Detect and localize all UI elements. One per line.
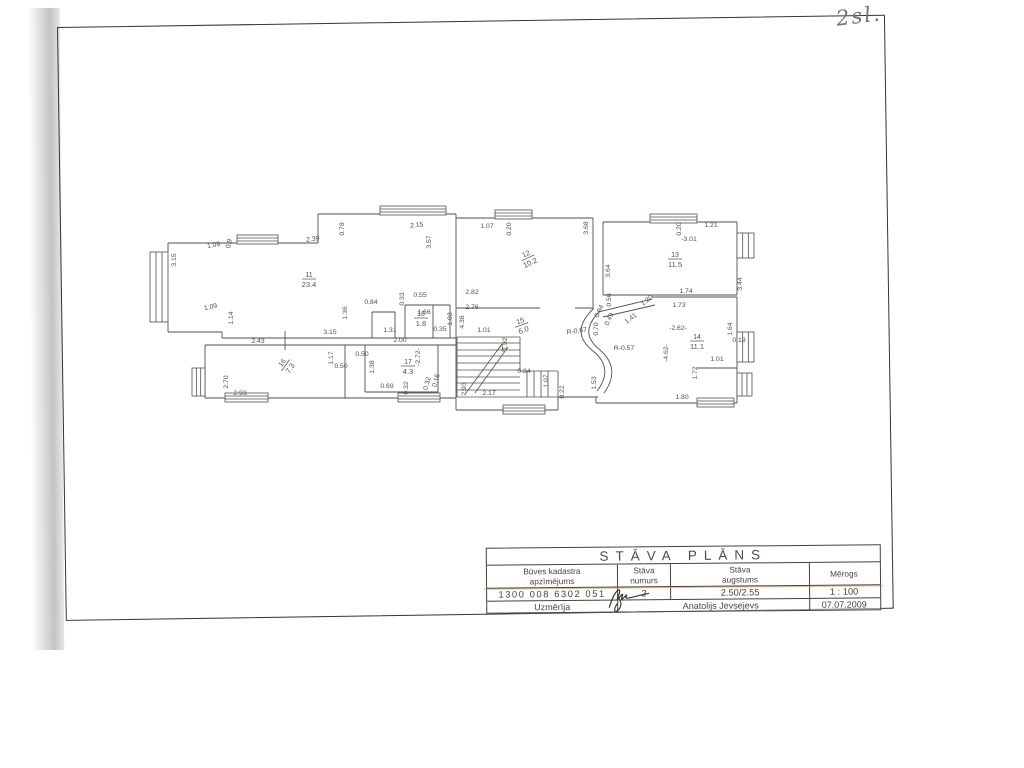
room-number: 14 [693,334,701,341]
dimension-label: -3.01 [681,236,697,243]
dimension-label: 0.84 [364,299,377,306]
dimension-label: R-0.57 [614,345,635,352]
dimension-label: 1.72 [692,366,699,379]
dimension-label: 1.14 [228,311,235,324]
plan-room-labels: 1123.41210.21311.51411.1156.0167.3174.31… [276,248,704,376]
dimension-label: 1.07 [543,374,550,387]
kadastra-value: 1300 008 6302 051 [487,588,618,601]
room-number: 17 [404,359,412,366]
dimension-label: 1.92 [502,337,509,350]
merogs-value: 1 : 100 [810,585,878,598]
room-number: 11 [305,272,312,279]
window [737,233,754,258]
dimension-label: 1.01 [710,356,723,363]
dimension-label: 1.74 [679,288,692,295]
dimension-label: 0.50 [355,351,368,358]
dimension-label: 1.09 [207,241,221,250]
dimension-label: 0.19 [732,337,745,344]
dimension-label: 1.36 [342,306,349,319]
room-number: 18 [417,311,425,318]
dimension-label: 1.73 [672,302,685,309]
dimension-label: 3.15 [323,329,336,336]
header-kadastra: Būves kadastra apzīmējums [487,565,618,588]
dimension-label: 0.20 [506,222,513,235]
plan-windows [150,206,754,414]
dimension-label: 0.16 [431,373,441,388]
dimension-label: 0.84 [517,368,530,375]
dimension-label: 1.01 [477,327,490,334]
dimension-label: 0.69 [380,383,393,390]
dimension-label: 2.17 [482,390,495,397]
surveyor-label: Uzmērīja [487,601,618,614]
dimension-label: 0.9 [225,238,234,249]
dimension-label: 2.76 [465,304,478,311]
dimension-label: 2.70 [223,375,230,388]
dimension-label: 2.93 [233,390,246,397]
dimension-label: 0.20 [676,222,683,235]
floor-plan-drawing: 1.090.92.390.782.153.571.070.203.680.201… [0,0,1024,768]
dimension-label: 1.31 [383,327,396,334]
stair-line [466,344,502,393]
dimension-label: 2.39 [306,235,320,243]
dimension-label: 1.41 [624,312,639,326]
room-label: 1210.2 [518,248,538,270]
survey-date: 07.07.2009 [810,598,878,611]
dimension-label: 0.56 [606,293,613,306]
dimension-label: R-0.67 [566,327,587,337]
room-label: 1123.4 [302,272,317,289]
room-label: 1411.1 [690,334,704,351]
dimension-label: 3.44 [737,277,744,290]
room-label: 156.0 [513,316,532,337]
dimension-label: 4.38 [459,315,466,328]
window [380,206,446,215]
dimension-label: 1.09 [203,303,218,313]
dimension-label: 0.32 [403,381,410,394]
window [697,398,734,407]
room-label: 174.3 [401,359,415,376]
dimension-label: -4.62- [663,344,670,362]
dimension-label: 1.64 [727,322,734,335]
dimension-label: 3.68 [583,221,590,234]
dimension-label: 0.55 [413,292,426,299]
room-label: 167.3 [276,355,298,376]
dimension-label: 0.70 [593,322,600,335]
dimension-label: 1.80 [675,394,688,401]
dimension-label: 2.15 [410,221,424,229]
room-number: 13 [671,252,679,259]
dimension-label: -2.62- [669,325,687,332]
window [237,235,278,244]
dimension-label: 2.00 [393,337,406,344]
dimension-label: 0.22 [559,385,566,398]
window [503,405,545,414]
window [192,368,205,396]
dimension-label: 3.64 [605,264,612,277]
dimension-label: 1.21 [704,222,717,229]
dimension-label: 3.15 [171,253,178,266]
header-merogs: Mērogs [810,562,878,585]
window [150,252,168,322]
dimension-label: 1.38 [369,360,376,373]
stava-augstums-value: 2.50/2.55 [671,586,810,599]
title-block: STĀVA PLĀNS Būves kadastra apzīmējums St… [486,544,882,613]
dimension-label: 2.82 [465,289,478,296]
dimension-label: 0.49 [604,312,616,327]
dimension-label: 0.78 [339,222,346,235]
dimension-label: 1.07 [480,223,493,230]
room-area: 1.8 [416,319,426,328]
plan-dimension-labels: 1.090.92.390.782.153.571.070.203.680.201… [171,221,746,401]
dimension-label: 0.50 [334,363,347,370]
room-label: 1311.5 [668,252,682,269]
signature [603,583,689,622]
room-area: 23.4 [302,280,317,289]
header-stava-augstums: Stāva augstums [671,563,810,586]
dimension-label: 1.03 [447,312,454,325]
room-area: 11.5 [668,260,682,269]
dimension-label: 0.33 [399,292,406,305]
dimension-label: 1.53 [591,376,598,389]
window [495,210,532,219]
dimension-label: 0.35 [433,326,446,333]
room-area: 11.1 [690,342,704,351]
dimension-label: 2.93 [461,382,468,395]
window [737,373,752,396]
dimension-label: -2.72- [415,348,422,366]
dimension-label: 3.57 [426,235,433,248]
window [650,214,697,223]
dimension-label: 2.43 [251,338,264,345]
room-area: 4.3 [403,367,413,376]
